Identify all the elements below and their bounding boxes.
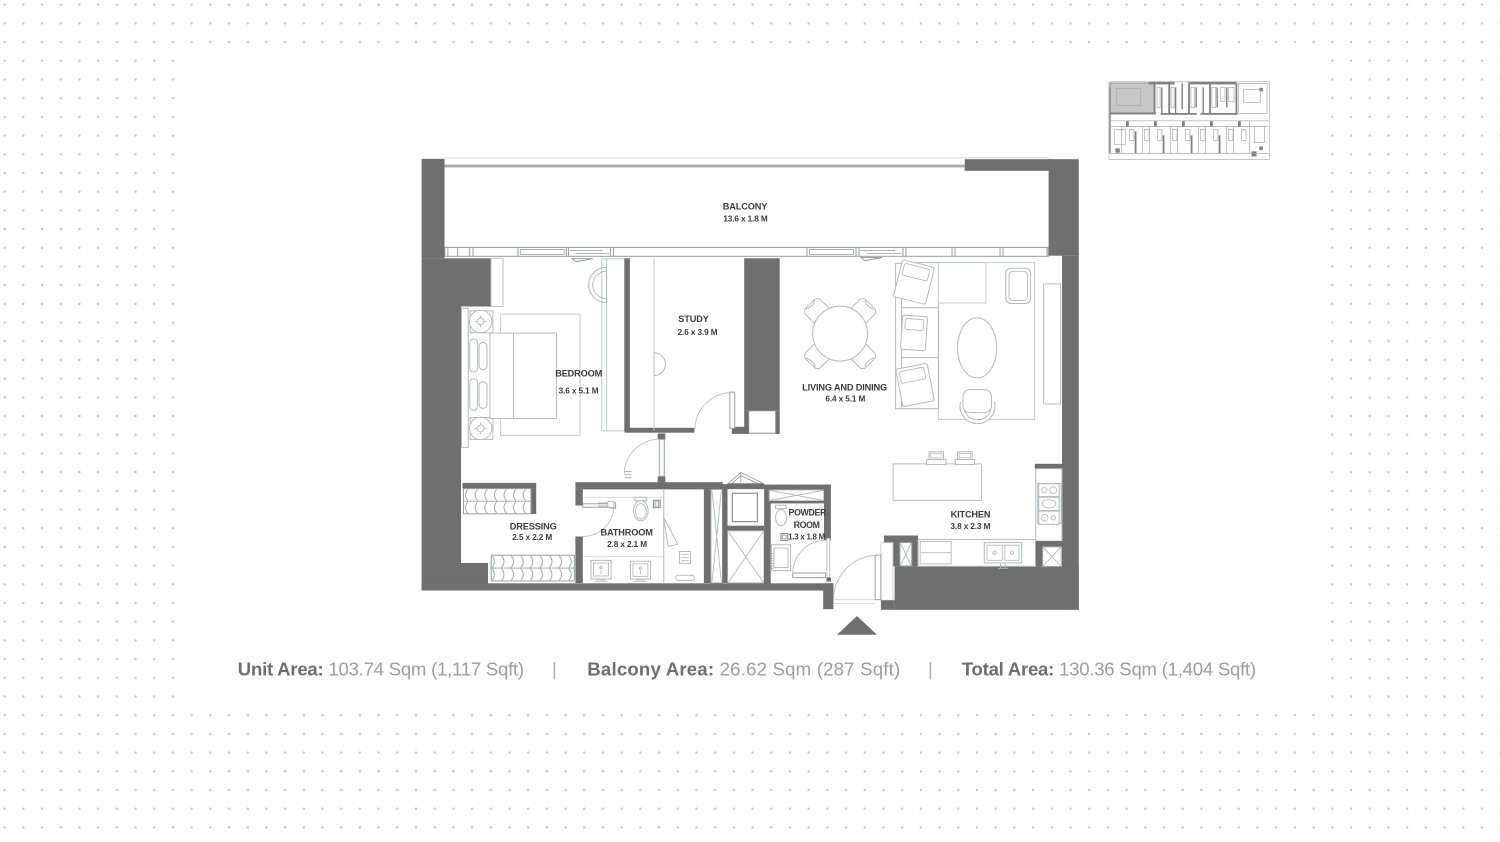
svg-text:2.6 x 3.9 M: 2.6 x 3.9 M	[678, 328, 718, 337]
svg-text:Unit Area: 103.74 Sqm (1,117 S: Unit Area: 103.74 Sqm (1,117 Sqft)	[238, 659, 524, 680]
svg-text:BATHROOM: BATHROOM	[600, 528, 653, 538]
svg-text:BALCONY: BALCONY	[723, 202, 767, 212]
svg-text:|: |	[928, 659, 933, 680]
svg-text:Total Area: 130.36 Sqm (1,404: Total Area: 130.36 Sqm (1,404 Sqft)	[962, 659, 1256, 680]
svg-text:6.4 x 5.1 M: 6.4 x 5.1 M	[825, 395, 865, 404]
svg-text:2.8 x 2.1 M: 2.8 x 2.1 M	[607, 540, 647, 549]
svg-text:DRESSING: DRESSING	[510, 522, 557, 532]
svg-text:ROOM: ROOM	[794, 520, 820, 530]
svg-text:STUDY: STUDY	[678, 314, 708, 324]
svg-text:POWDER: POWDER	[789, 508, 827, 518]
svg-text:13.6 x 1.8 M: 13.6 x 1.8 M	[723, 214, 768, 223]
svg-text:BEDROOM: BEDROOM	[555, 369, 602, 379]
svg-text:3.8 x 2.3 M: 3.8 x 2.3 M	[950, 522, 990, 531]
svg-text:2.5 x 2.2 M: 2.5 x 2.2 M	[512, 533, 552, 542]
svg-text:Balcony Area: 26.62 Sqm (287 S: Balcony Area: 26.62 Sqm (287 Sqft)	[587, 659, 900, 680]
svg-text:|: |	[552, 659, 557, 680]
svg-text:LIVING AND DINING: LIVING AND DINING	[802, 383, 887, 393]
svg-text:1.3 x 1.8 M: 1.3 x 1.8 M	[788, 533, 825, 542]
svg-text:3.6 x 5.1 M: 3.6 x 5.1 M	[559, 387, 599, 396]
svg-text:KITCHEN: KITCHEN	[951, 510, 991, 520]
